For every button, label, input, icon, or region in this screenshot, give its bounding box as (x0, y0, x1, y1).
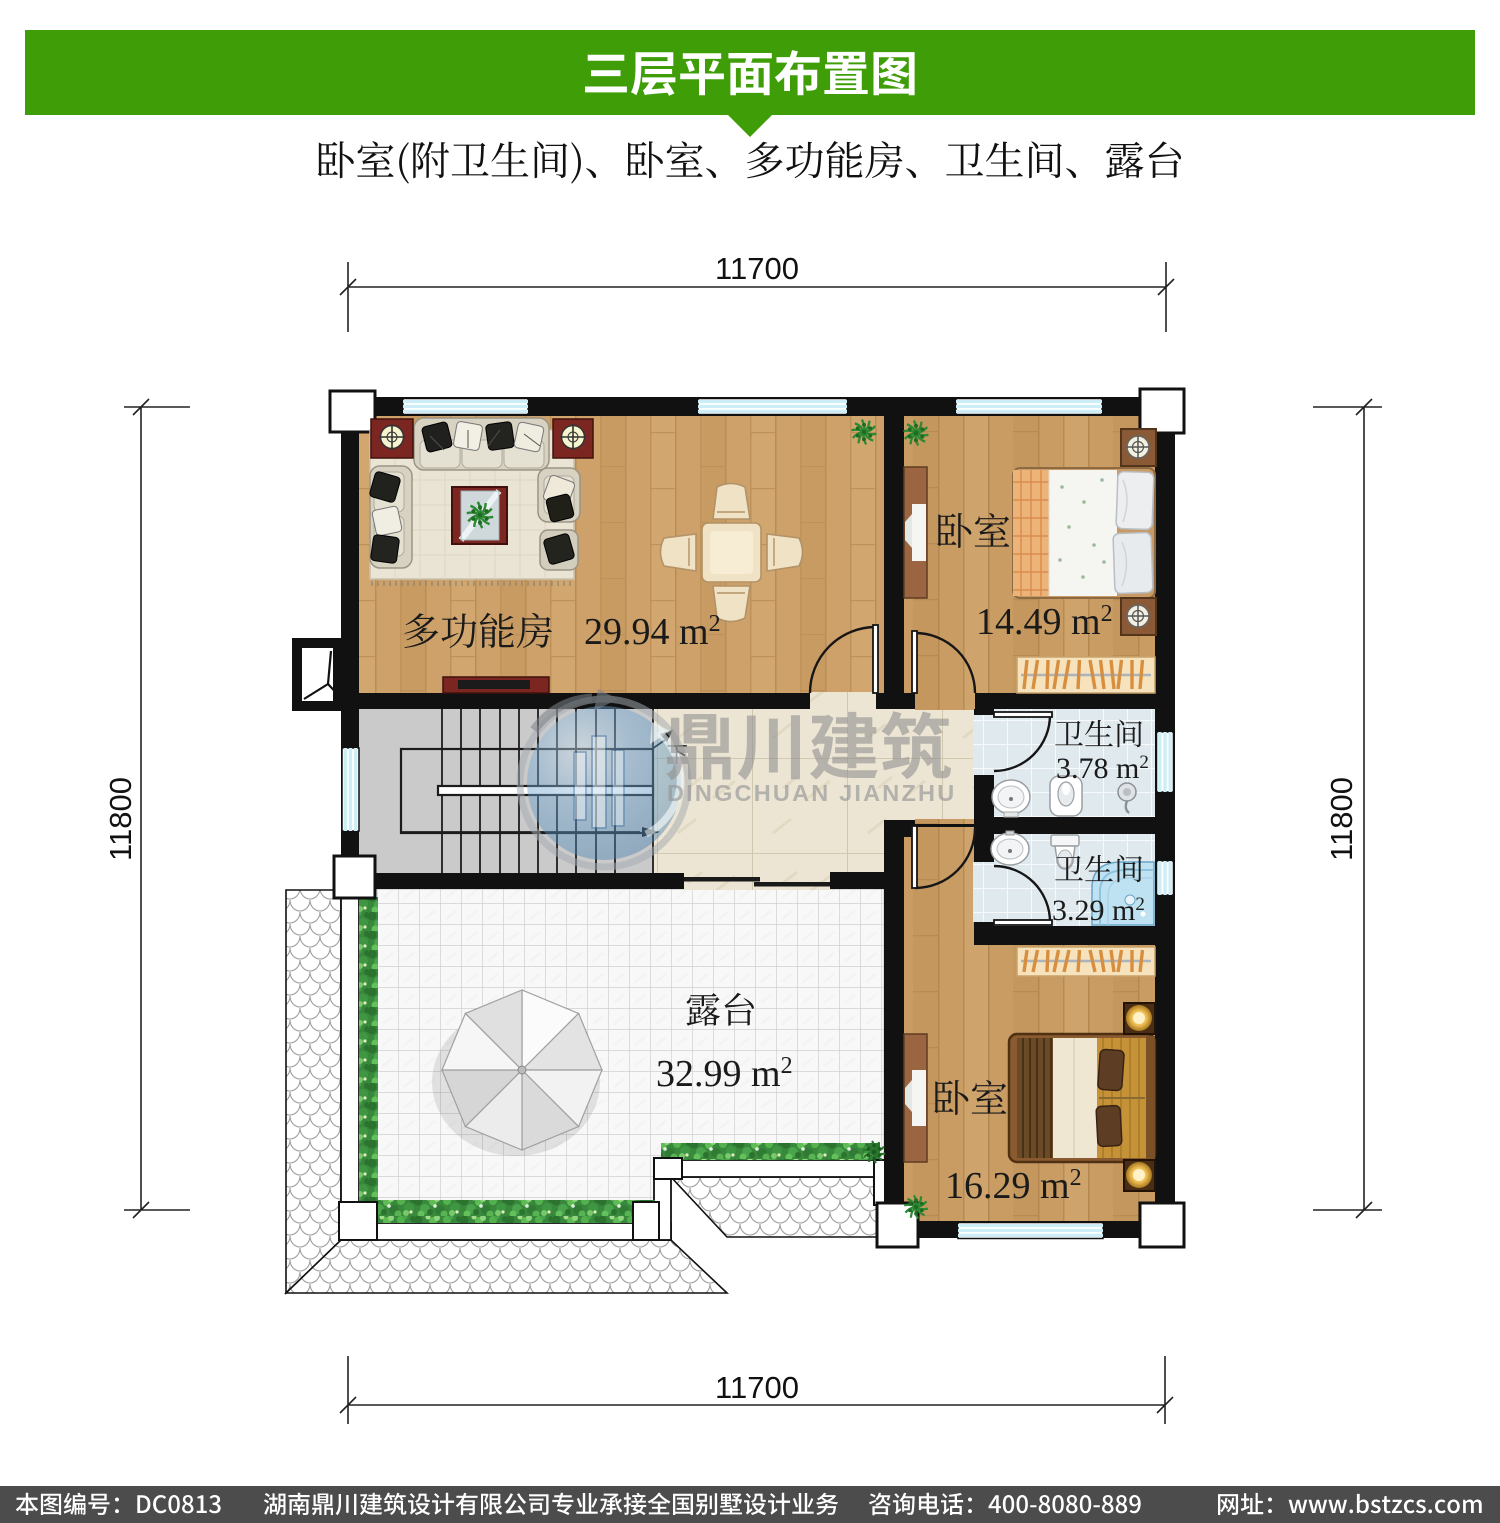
svg-text:14.49 m2: 14.49 m2 (976, 601, 1113, 643)
svg-text:16.29 m2: 16.29 m2 (945, 1165, 1082, 1207)
svg-text:3.78 m2: 3.78 m2 (1056, 752, 1149, 785)
svg-text:11800: 11800 (103, 777, 138, 861)
svg-text:11700: 11700 (715, 1370, 799, 1405)
svg-text:3.29 m2: 3.29 m2 (1052, 894, 1145, 927)
svg-text:DINGCHUAN JIANZHU: DINGCHUAN JIANZHU (667, 780, 956, 806)
svg-text:11800: 11800 (1324, 777, 1359, 861)
svg-text:11700: 11700 (715, 251, 799, 286)
svg-text:32.99 m2: 32.99 m2 (656, 1053, 793, 1095)
svg-text:29.94 m2: 29.94 m2 (584, 611, 721, 653)
